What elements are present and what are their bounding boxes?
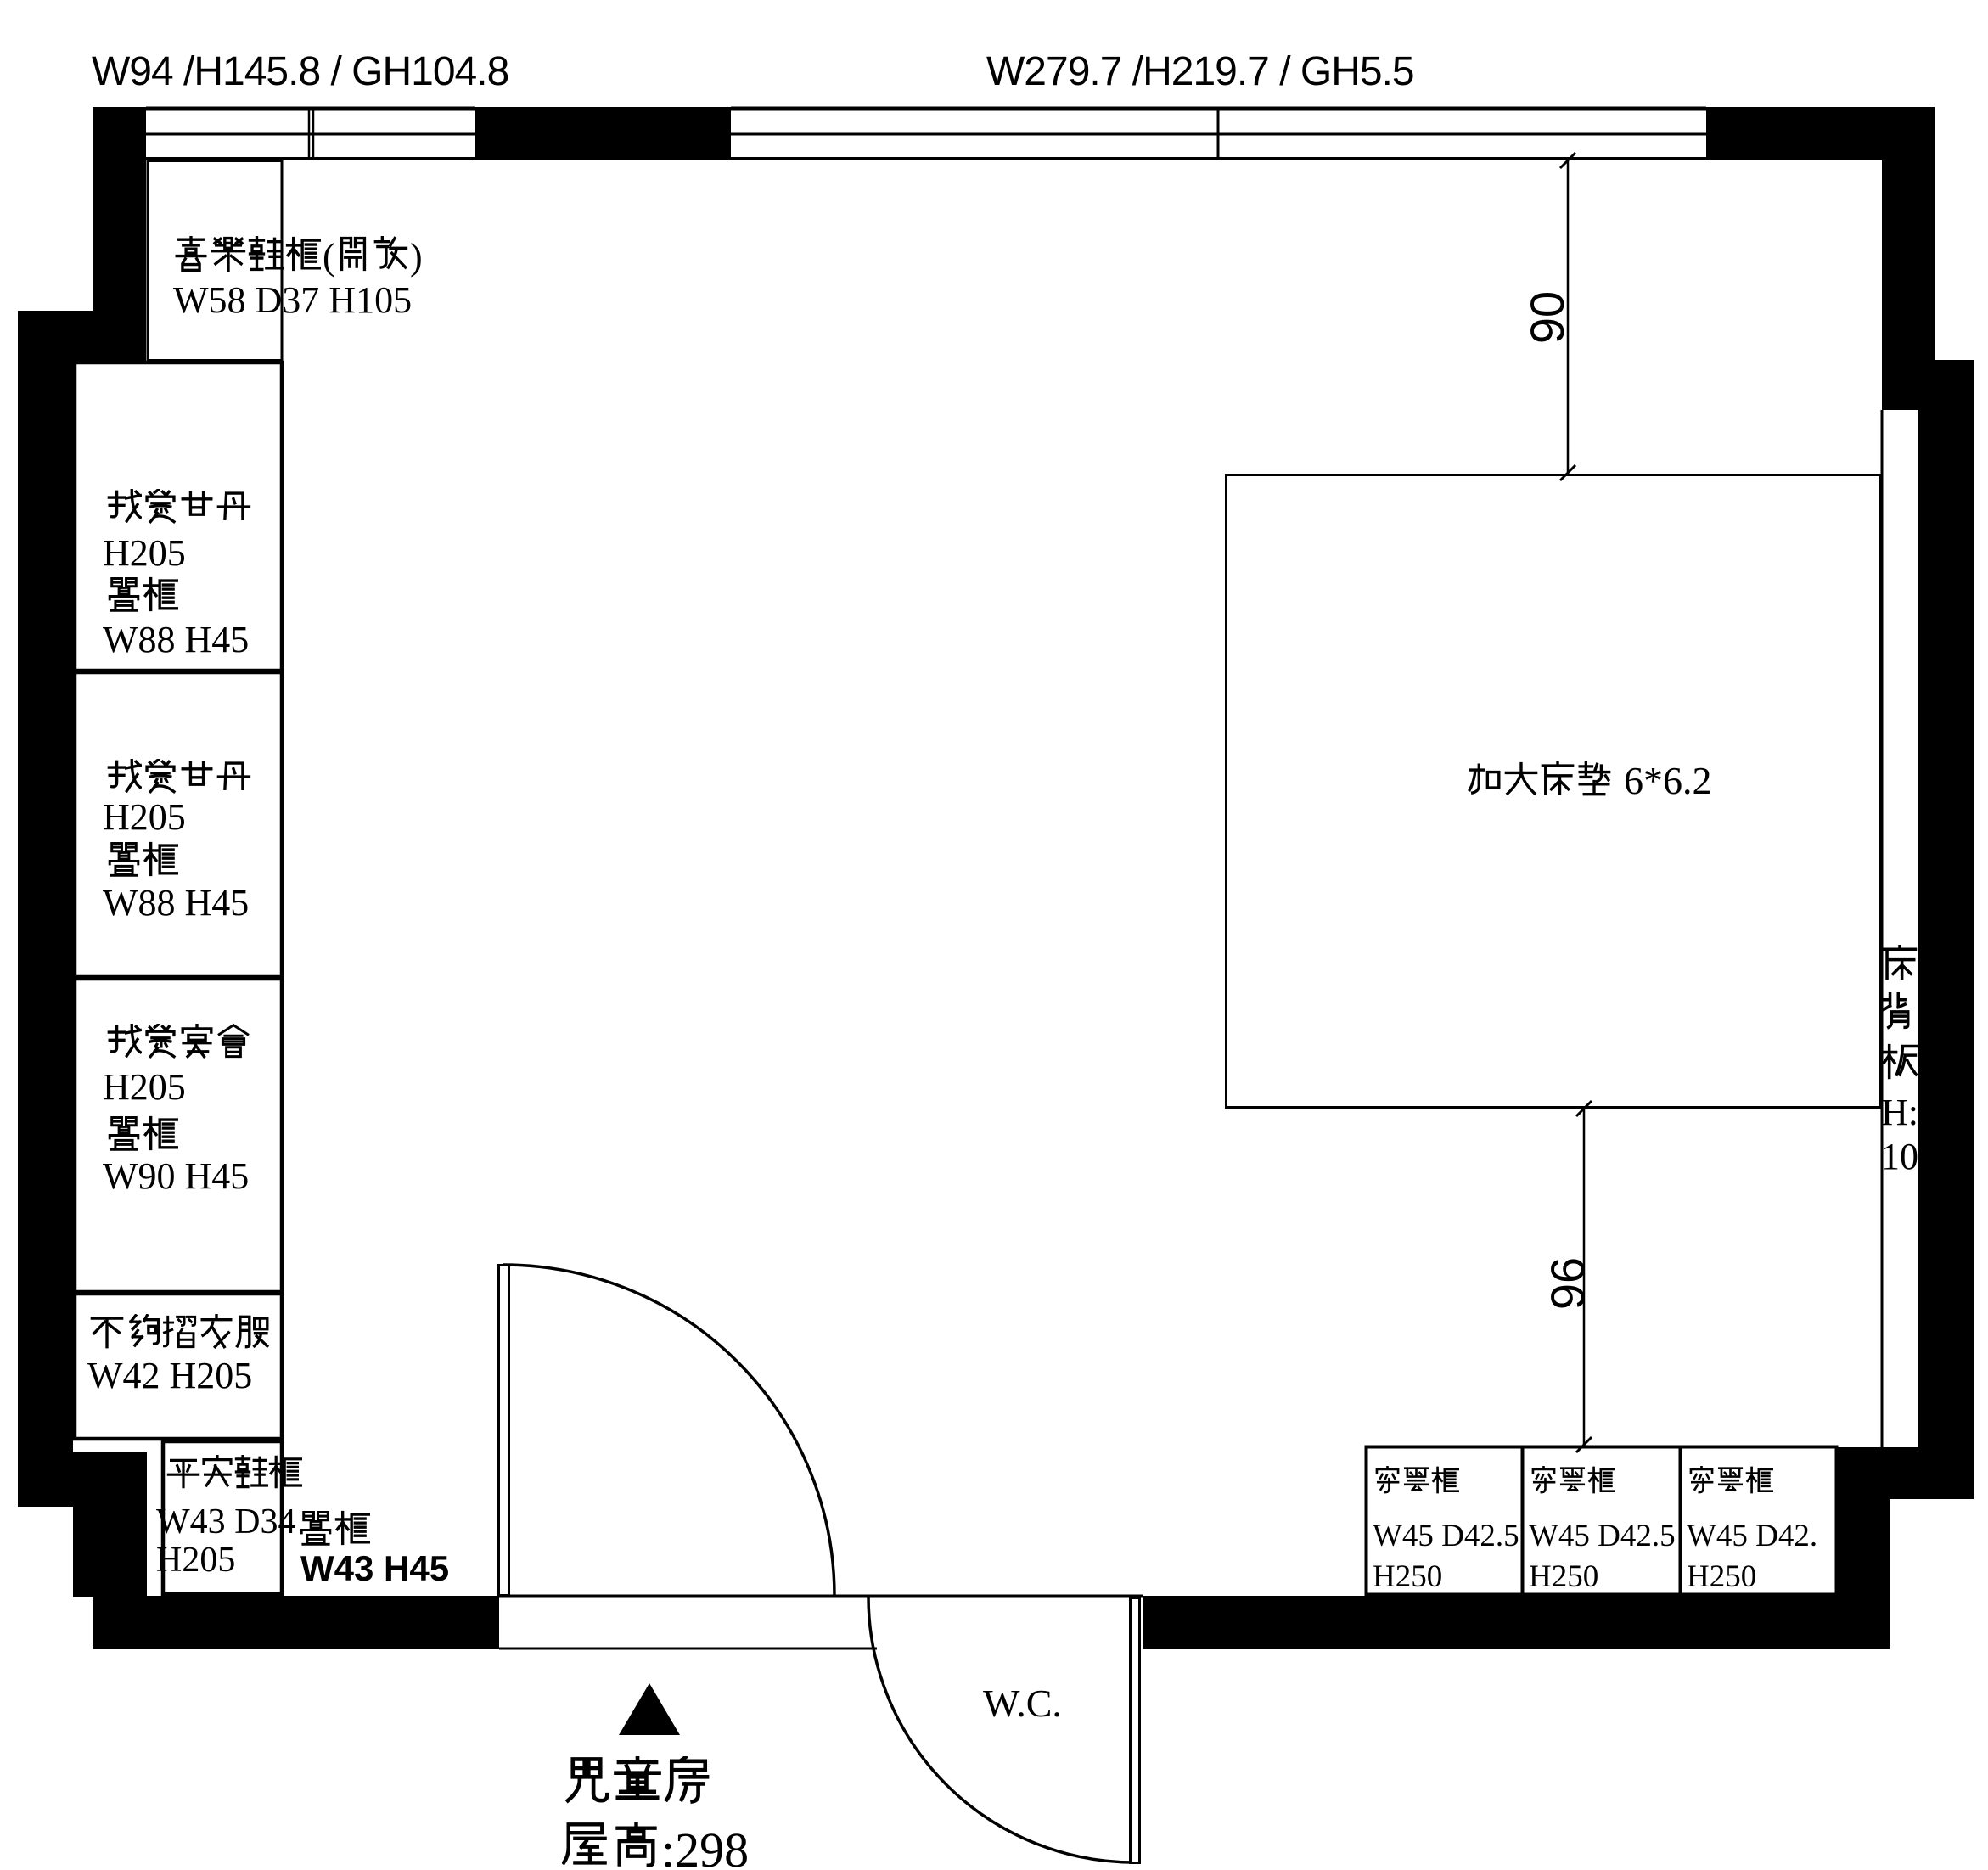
svg-text:100: 100 [1881,1136,1937,1177]
svg-text:6*6.2: 6*6.2 [1624,759,1712,802]
svg-text:W58 D37 H105: W58 D37 H105 [173,279,412,321]
svg-text:H:: H: [1881,1092,1918,1133]
svg-text:W88 H45: W88 H45 [103,619,249,660]
svg-text:W94 /H145.8 / GH104.8: W94 /H145.8 / GH104.8 [92,49,508,94]
svg-text:W43 H45: W43 H45 [300,1548,449,1588]
svg-text:W43 D34: W43 D34 [156,1502,295,1541]
svg-text:H205: H205 [156,1541,235,1580]
svg-text:H250: H250 [1687,1559,1756,1594]
svg-text:W.C.: W.C. [983,1682,1062,1725]
svg-text:W45 D42.5: W45 D42.5 [1373,1519,1519,1553]
svg-text:W45 D42.: W45 D42. [1687,1519,1817,1553]
svg-text::298: :298 [661,1822,749,1870]
svg-text:W90 H45: W90 H45 [103,1155,249,1197]
svg-text:96: 96 [1541,1257,1594,1310]
svg-text:W45 D42.5: W45 D42.5 [1529,1519,1676,1553]
svg-text:W88 H45: W88 H45 [103,882,249,924]
svg-text:90: 90 [1520,291,1574,344]
svg-text:W42 H205: W42 H205 [87,1355,252,1396]
svg-text:W279.7 /H219.7 / GH5.5: W279.7 /H219.7 / GH5.5 [986,49,1414,94]
svg-text:H205: H205 [103,796,186,838]
svg-text:): ) [410,236,423,278]
svg-text:H205: H205 [103,532,186,574]
svg-text:H205: H205 [103,1066,186,1108]
svg-text:H250: H250 [1373,1559,1442,1594]
svg-text:H250: H250 [1529,1559,1598,1594]
svg-text:(: ( [323,236,335,278]
